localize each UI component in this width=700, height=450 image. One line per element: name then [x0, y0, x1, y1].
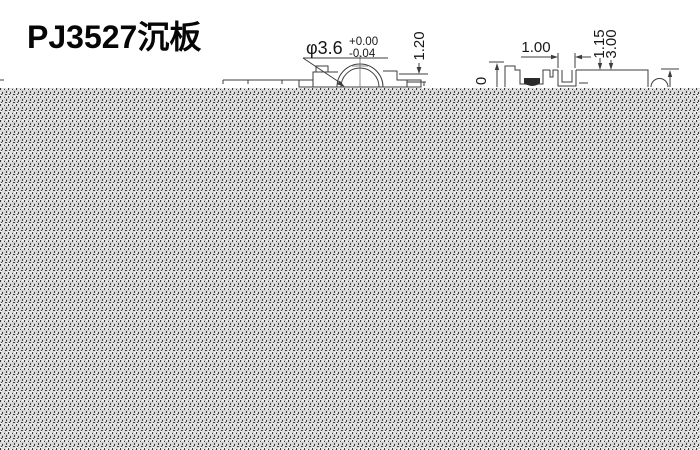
front-tolerance-upper: +0.00 — [349, 36, 378, 48]
front-diameter-label: φ3.6 — [306, 38, 343, 58]
solder-terminal — [524, 78, 540, 86]
side-arc-feature — [651, 79, 668, 88]
side-depth-dimension-b: 3.00 — [603, 29, 620, 70]
side-zero-label: 0 — [473, 77, 490, 85]
page: PJ3527沉板 — [0, 0, 700, 450]
side-depth-label-b: 3.00 — [603, 29, 620, 58]
front-diameter-dimension: φ3.6 +0.00 -0.04 — [303, 36, 388, 87]
up-arrowhead — [668, 70, 672, 77]
side-zero-dimension: 0 — [473, 62, 504, 87]
halftone-region — [0, 88, 700, 450]
side-right-dimension — [661, 69, 679, 87]
front-height-label: 1.20 — [411, 31, 428, 60]
side-part-outline — [505, 66, 668, 87]
technical-drawing: φ3.6 +0.00 -0.04 1.20 — [0, 0, 700, 450]
side-view: 1.00 0 — [473, 29, 679, 87]
front-view: φ3.6 +0.00 -0.04 1.20 — [0, 31, 428, 87]
side-pitch-label: 1.00 — [521, 39, 550, 56]
up-arrowhead — [495, 63, 499, 70]
side-pitch-dimension: 1.00 — [521, 39, 591, 68]
down-arrowhead — [417, 67, 422, 74]
front-height-dimension: 1.20 — [399, 31, 428, 86]
front-tolerance-lower: -0.04 — [349, 48, 376, 60]
